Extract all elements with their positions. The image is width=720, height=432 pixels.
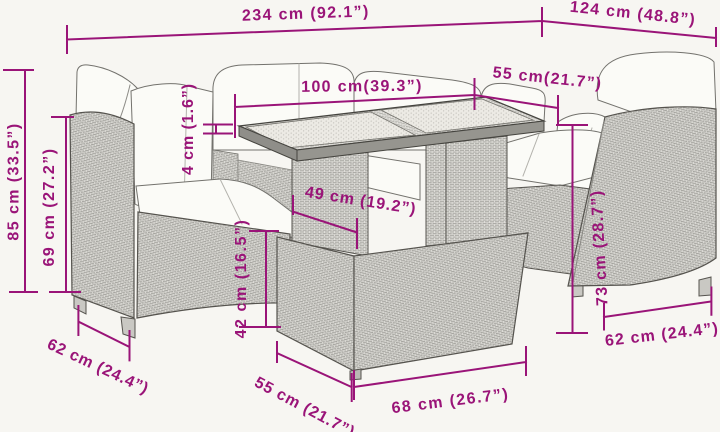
- svg-text:4 cm (1.6”): 4 cm (1.6”): [180, 83, 197, 175]
- svg-text:100 cm(39.3”): 100 cm(39.3”): [301, 78, 423, 96]
- svg-text:69 cm (27.2”): 69 cm (27.2”): [41, 147, 58, 266]
- svg-text:85 cm (33.5”): 85 cm (33.5”): [6, 122, 23, 240]
- svg-text:42 cm (16.5”): 42 cm (16.5”): [233, 219, 250, 339]
